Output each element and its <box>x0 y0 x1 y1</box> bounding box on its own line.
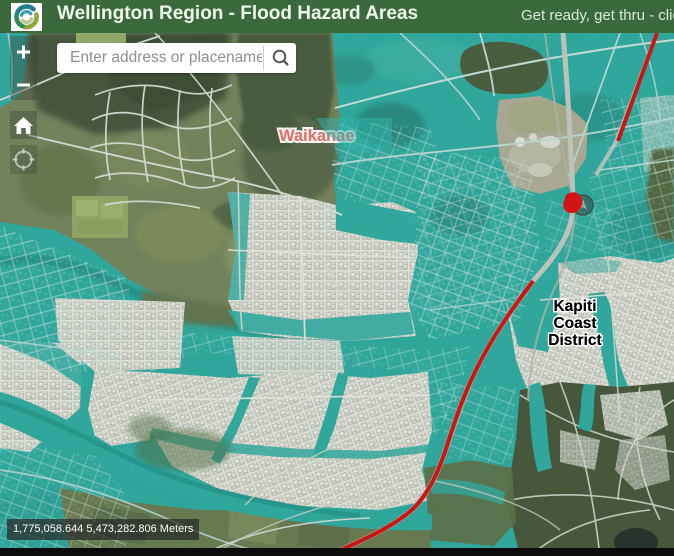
svg-text:District: District <box>548 332 601 349</box>
svg-text:Coast: Coast <box>553 315 596 332</box>
svg-text:Kapiti: Kapiti <box>553 298 596 315</box>
